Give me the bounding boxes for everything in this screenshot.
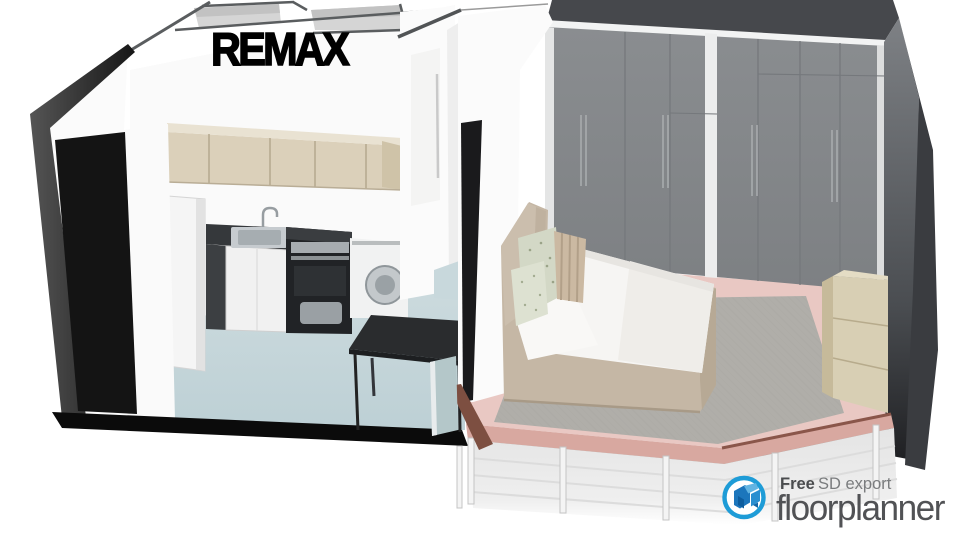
svg-text:REMAX: REMAX — [211, 23, 350, 75]
svg-text:floorplanner: floorplanner — [776, 487, 945, 528]
